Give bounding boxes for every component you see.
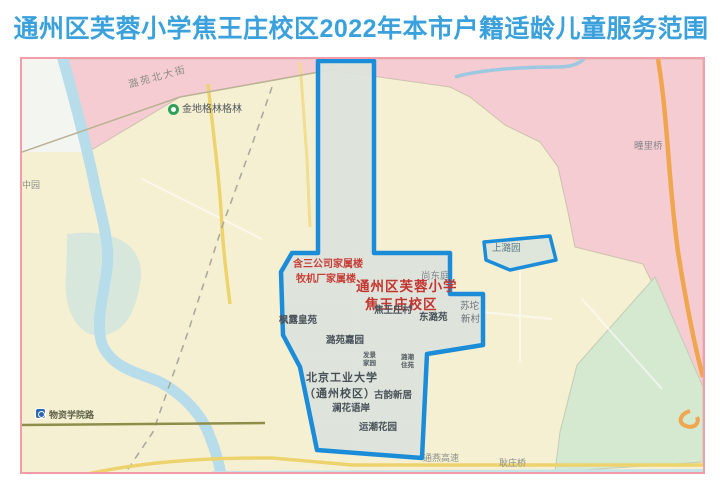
map-label-guyun-xinju: 古韵新居 [374, 391, 412, 401]
map-label-school-line1: 通州区芙蓉小学 [356, 280, 458, 294]
map-label-sutuo-line1: 苏坨 [460, 302, 479, 312]
map-label-bjut-line2: （通州校区） [304, 389, 376, 401]
map-label-luyuan-jiayuan: 潞苑嘉园 [326, 336, 364, 346]
metro-station-icon [35, 408, 46, 419]
map-label-jiaowangzhuang-village: 焦王庄村 [374, 306, 412, 316]
service-area-map: 潞苑北大街 金地格林格林 中园 疃里桥 上潞园 尚东庭 含三公司家属楼 牧机厂家… [20, 57, 705, 474]
map-label-tongyan-expressway: 通燕高速 [423, 454, 459, 463]
map-label-gengzhuang-bridge: 耿庄桥 [499, 459, 526, 468]
map-label-bjut-line1: 北京工业大学 [306, 373, 378, 385]
map-label-dongluyuan: 东潞苑 [419, 313, 448, 323]
map-label-lanhua-yuan: 澜花语岸 [332, 404, 370, 414]
park-pin-icon [168, 104, 179, 115]
map-label-yunchao-garden: 运潮花园 [359, 423, 397, 433]
map-label-fenglu-huangyuan: 枫露皇苑 [279, 316, 317, 326]
map-label-tiny2-line2: 住苑 [401, 363, 414, 370]
map-label-tiny1-line1: 发景 [363, 353, 376, 360]
map-label-tiny2-line1: 潞潮 [401, 355, 414, 362]
map-label-hansan-housing: 含三公司家属楼 [293, 260, 363, 271]
page-title: 通州区芙蓉小学焦王庄校区2022年本市户籍适龄儿童服务范围 [0, 0, 722, 45]
map-label-tuanli-bridge: 疃里桥 [634, 142, 663, 152]
map-label-muji-housing: 牧机厂家属楼 [296, 275, 356, 286]
map-label-zhongyuan: 中园 [22, 181, 40, 190]
map-label-sutuo-line2: 新村 [461, 315, 480, 325]
map-label-gemdale: 金地格林格林 [182, 105, 242, 116]
map-label-wuzixueyuanlu-station: 物资学院路 [49, 411, 94, 420]
map-label-shangluyuan: 上潞园 [492, 244, 521, 254]
map-label-tiny1-line2: 家园 [363, 361, 376, 368]
